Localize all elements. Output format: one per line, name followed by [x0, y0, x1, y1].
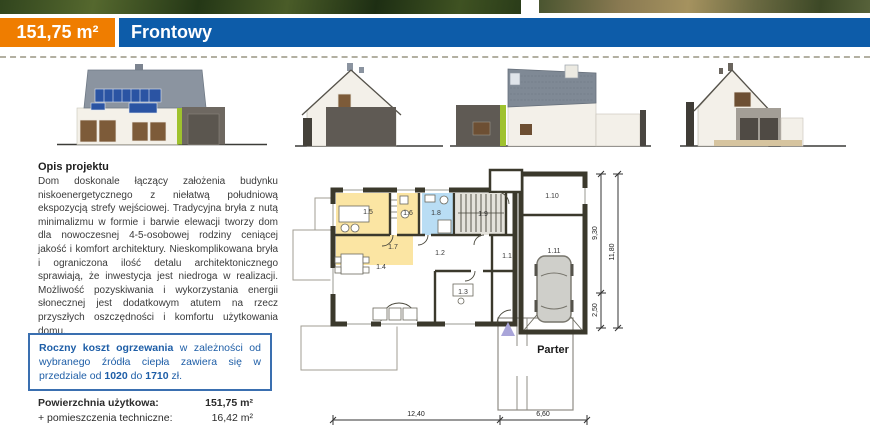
elevation-rear-drawing [678, 62, 850, 157]
room-label: 1.10 [545, 193, 559, 200]
area-value: 16,42 m² [212, 411, 253, 426]
chimney [686, 102, 694, 146]
catalog-page: 151,75 m² Frontowy [0, 0, 870, 430]
gable-window [734, 92, 751, 107]
dimension-label: 12,40 [407, 411, 425, 418]
area-value: 151,75 m² [205, 396, 253, 411]
cost-high-value: 1710 [145, 370, 168, 382]
table-row: + pomieszczenia techniczne: 16,42 m² [38, 411, 253, 426]
area-badge: 151,75 m² [0, 18, 115, 47]
garage-door [188, 114, 219, 145]
dimension-label: 2,50 [592, 303, 599, 317]
cost-lead: Roczny koszt ogrzewania [39, 342, 173, 354]
side-terrace [293, 230, 331, 280]
areas-table: Powierzchnia użytkowa: 151,75 m² + pomie… [38, 396, 253, 426]
variant-title-bar: Frontowy [119, 18, 870, 47]
room-label: 1.11 [547, 248, 560, 255]
room-label: 1.6 [403, 210, 413, 217]
car [535, 256, 574, 322]
room-label: 1.4 [376, 264, 386, 271]
room-label: 1.9 [478, 211, 488, 218]
room-label: 1.7 [388, 244, 398, 251]
top-photo-right [539, 0, 870, 13]
area-label: Powierzchnia użytkowa: [38, 396, 159, 411]
dark-wall-block [326, 107, 396, 146]
description-paragraph: Dom doskonale łączący założenia budynku … [38, 175, 278, 338]
elevation-side-left-drawing [293, 62, 445, 157]
dimension-label: 9,30 [592, 226, 599, 240]
entry-porch [490, 170, 522, 192]
variant-name: Frontowy [131, 22, 212, 43]
cost-low-value: 1020 [104, 370, 127, 382]
top-photo-left [0, 0, 521, 14]
elevation-front-drawing [55, 62, 270, 157]
rear-terrace [301, 326, 397, 370]
dimension-label: 11,80 [609, 243, 616, 260]
dotted-separator [0, 56, 870, 58]
floor-title: Parter [537, 344, 570, 356]
area-badge-text: 151,75 m² [16, 22, 98, 43]
green-accent-stripe [177, 108, 182, 145]
room-label: 1.2 [435, 250, 445, 257]
description-heading: Opis projektu [38, 161, 109, 173]
dimension-label: 6,60 [536, 411, 550, 418]
heating-cost-box: Roczny koszt ogrzewania w zależności od … [28, 333, 272, 391]
room-label: 1.1 [502, 253, 512, 260]
room-label: 1.3 [458, 289, 468, 296]
room-label: 1.5 [363, 209, 373, 216]
room-label: 1.8 [431, 210, 441, 217]
floor-plan-drawing: 1.5 1.6 1.8 1.7 1.2 1.4 1.3 1.9 1.1 1.10… [285, 168, 645, 430]
area-label: + pomieszczenia techniczne: [38, 411, 173, 426]
green-accent-stripe [500, 105, 506, 146]
table-row: Powierzchnia użytkowa: 151,75 m² [38, 396, 253, 411]
elevation-side-right-drawing [448, 62, 653, 157]
